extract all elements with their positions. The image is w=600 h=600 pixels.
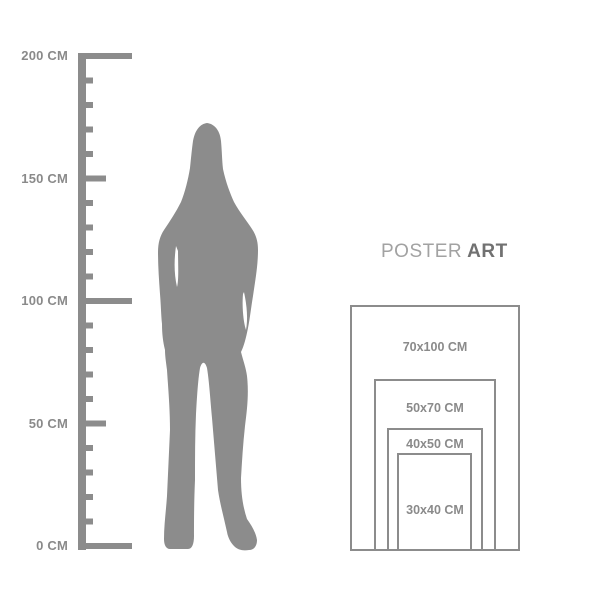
poster-size-guide: 200 CM 150 CM 100 CM 50 CM 0 CM POSTERAR… bbox=[0, 0, 600, 600]
ruler-label-150cm: 150 CM bbox=[8, 171, 68, 187]
woman-silhouette-body bbox=[158, 123, 258, 550]
ruler-label-200cm: 200 CM bbox=[8, 48, 68, 64]
woman-silhouette bbox=[155, 122, 259, 552]
ruler-label-0cm: 0 CM bbox=[8, 538, 68, 554]
size-label-30x40: 30x40 CM bbox=[335, 502, 535, 518]
size-label-40x50: 40x50 CM bbox=[335, 436, 535, 452]
size-label-50x70: 50x70 CM bbox=[335, 400, 535, 416]
ruler-label-50cm: 50 CM bbox=[8, 416, 68, 432]
size-label-70x100: 70x100 CM bbox=[335, 339, 535, 355]
brand-title: POSTERART bbox=[381, 242, 508, 261]
brand-title-art: ART bbox=[467, 241, 508, 262]
ruler-label-100cm: 100 CM bbox=[8, 293, 68, 309]
ruler-ticks-svg bbox=[78, 53, 132, 550]
brand-title-poster: POSTER bbox=[381, 241, 462, 262]
